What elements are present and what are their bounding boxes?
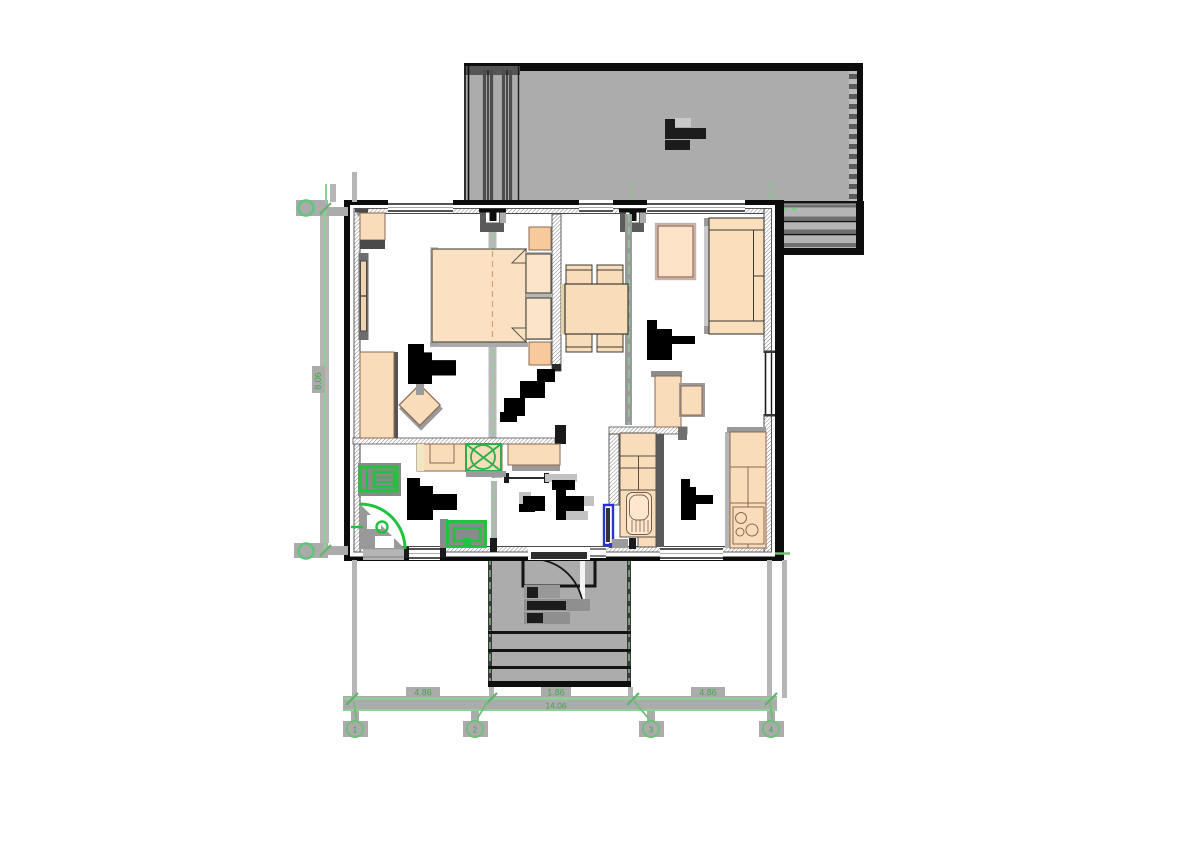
svg-text:2: 2: [473, 726, 478, 735]
svg-text:14.06: 14.06: [545, 701, 567, 711]
svg-text:1: 1: [353, 726, 358, 735]
svg-text:4.86: 4.86: [699, 688, 717, 698]
svg-text:1.86: 1.86: [547, 688, 565, 698]
svg-text:4: 4: [769, 726, 774, 735]
svg-text:4.86: 4.86: [414, 688, 432, 698]
svg-text:3: 3: [649, 726, 654, 735]
svg-text:8.06: 8.06: [313, 372, 323, 390]
